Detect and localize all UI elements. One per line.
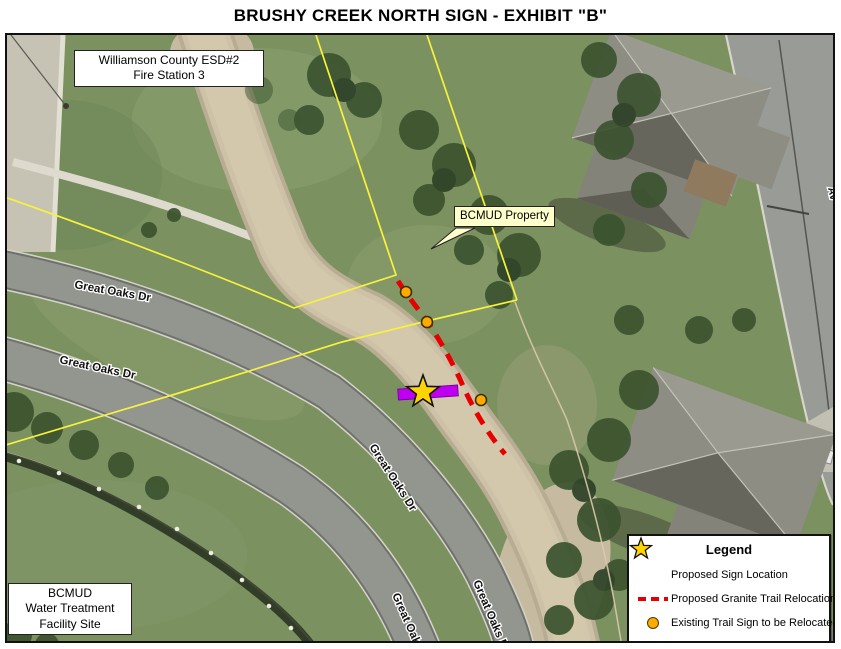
exhibit-page: BRUSHY CREEK NORTH SIGN - EXHIBIT "B" [0,0,841,649]
orange-dot-icon [635,617,671,629]
legend: Legend Proposed Sign Location Proposed G… [627,534,831,643]
fire-station-line2: Fire Station 3 [81,68,257,83]
page-title: BRUSHY CREEK NORTH SIGN - EXHIBIT "B" [0,6,841,26]
water-treatment-label: BCMUD Water Treatment Facility Site [8,583,132,635]
map-frame: Great Oaks Dr Great Oaks Dr Great Oaks D… [5,33,835,643]
legend-row-trail-relocation: Proposed Granite Trail Relocation [635,587,823,611]
red-dashed-line-icon [635,597,671,601]
legend-title: Legend [635,542,823,557]
legend-row-proposed-sign: Proposed Sign Location [635,563,823,587]
water-treatment-line2: Water Treatment [15,601,125,616]
water-treatment-line1: BCMUD [15,586,125,601]
existing-sign-dot-3 [476,395,487,406]
existing-sign-dot-1 [401,287,412,298]
legend-label-proposed-sign: Proposed Sign Location [671,569,788,581]
legend-label-existing-sign: Existing Trail Sign to be Relocated [671,617,835,629]
fire-station-label: Williamson County ESD#2 Fire Station 3 [74,50,264,87]
legend-label-trail-relocation: Proposed Granite Trail Relocation [671,593,835,605]
bcmud-property-label: BCMUD Property [454,206,555,227]
water-treatment-line3: Facility Site [15,617,125,632]
fire-station-line1: Williamson County ESD#2 [81,53,257,68]
existing-sign-dot-2 [422,317,433,328]
legend-row-existing-sign: Existing Trail Sign to be Relocated [635,611,823,635]
